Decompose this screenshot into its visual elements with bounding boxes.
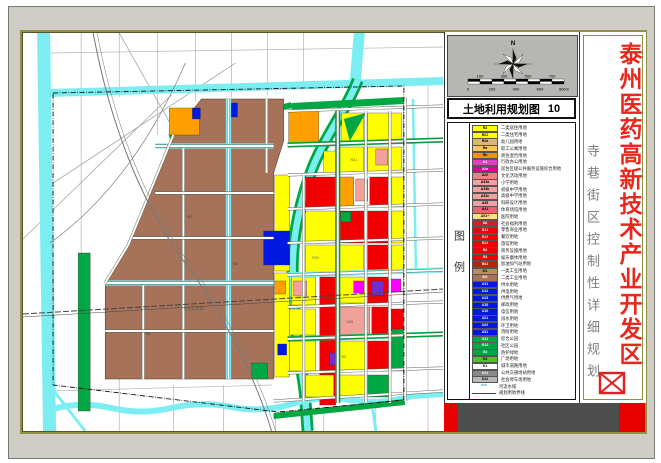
legend-item-label: 商务设施用地 [501, 248, 527, 254]
drawing-matte: M2M2M1R21R21A35R2北沿江高铁 N 100300500700020… [8, 6, 655, 459]
scale-segment [480, 79, 492, 82]
compass-scale-box: N 1003005007000200400600800m [447, 35, 578, 97]
scale-segment [468, 82, 480, 85]
signature-bar-red-right [619, 403, 645, 432]
planning-map: M2M2M1R21R21A35R2北沿江高铁 [23, 33, 443, 431]
legend-item-label: 社会福利用地 [501, 221, 527, 227]
legend-item-label: 娱乐康体用地 [501, 255, 527, 261]
parcel [370, 177, 388, 207]
parcel [192, 108, 200, 119]
legend-item-label: 广场用地 [501, 356, 518, 362]
legend-item-label: 供燃气用地 [501, 295, 522, 301]
parcel [340, 245, 364, 273]
legend-item-label: 二类工业用地 [501, 275, 527, 281]
legend-item-label: 二类住宅用地 [501, 132, 527, 138]
parcel-label: M2 [187, 215, 192, 219]
title-strip: 泰州医药高新技术产业开发区 寺巷街区控制性详细规划 [579, 32, 646, 403]
legend-item-label: 餐饮用地 [501, 234, 518, 240]
scale-label: 500 [525, 74, 532, 79]
scale-segment [528, 79, 540, 82]
parcel [390, 309, 404, 331]
scale-segment [540, 79, 552, 82]
compass-scale-svg: N 1003005007000200400600800m [448, 36, 577, 96]
signature-bar-red-left [444, 403, 458, 432]
planning-map-svg: M2M2M1R21R21A35R2北沿江高铁 [23, 33, 443, 431]
title-strip-frame: 泰州医药高新技术产业开发区 寺巷街区控制性详细规划 [583, 35, 643, 400]
scale-segment [504, 79, 516, 82]
legend-item-label: 行政办公用地 [501, 159, 527, 165]
legend-label-column: 图例 [448, 123, 470, 399]
railway-label: 北沿江高铁 [183, 305, 203, 311]
parcel [306, 177, 336, 207]
parcel [264, 231, 290, 265]
parcel [368, 245, 388, 273]
parcel [306, 245, 336, 273]
legend-item-label: 二类居住用地 [501, 125, 527, 131]
legend-panel: N 1003005007000200400600800m 土地利用规划图 10 … [444, 32, 580, 403]
legend-item-label: 居住区级公共服务设施综合用地 [501, 166, 561, 172]
scale-segment [492, 79, 504, 82]
scale-segment [516, 79, 528, 82]
parcel-label: M2 [233, 262, 238, 266]
legend-item-label: 体育场馆用地 [501, 207, 527, 213]
hospital-cross-icon: + [487, 214, 489, 218]
legend-label: 图例 [451, 230, 467, 292]
legend-item-label: 电信用地 [501, 309, 518, 315]
scale-segment [492, 82, 504, 85]
scale-label: 300 [501, 74, 508, 79]
legend-item-label: 小学用地 [501, 180, 518, 186]
green-left-bank [78, 253, 90, 411]
parcel-label: R2 [341, 355, 346, 359]
page: { "title_strip": { "main_title": "泰州医药高新… [0, 0, 661, 463]
parcel [354, 281, 364, 293]
legend-item-label: 防护绿地 [501, 350, 518, 356]
scale-label: 800m [559, 87, 570, 92]
scale-label: 200 [489, 87, 496, 92]
legend-item-label: 排水用地 [501, 316, 518, 322]
legend-item-label: 科研设计用地 [501, 200, 527, 206]
park [252, 363, 268, 379]
scale-segment [504, 82, 516, 85]
legend-item-label: 医院用地 [501, 214, 518, 220]
legend-item-label: 加油加气站用地 [501, 261, 531, 267]
parcel [278, 344, 287, 355]
scale-label: 0 [467, 87, 470, 92]
north-label: N [511, 41, 515, 47]
parcel [368, 113, 402, 143]
legend-item-label: 规划用地界线 [499, 390, 525, 396]
legend-item-label: 社会停车场用地 [501, 377, 531, 383]
scale-segment [516, 82, 528, 85]
boundary-line-icon [472, 393, 496, 394]
map-title-bar: 土地利用规划图 10 [447, 98, 576, 119]
parcel [338, 375, 366, 397]
legend-item-label: 社区公园 [501, 343, 518, 349]
legend-item-label: 高级中学用地 [501, 193, 527, 199]
parcel [372, 307, 388, 335]
legend-item-label: 城市道路用地 [501, 363, 527, 369]
legend-item-label: 综合公园 [501, 336, 518, 342]
park [341, 212, 351, 222]
project-title: 泰州医药高新技术产业开发区 [617, 42, 640, 367]
parcel [368, 341, 390, 371]
legend-item-label: 零售商业用地 [501, 227, 527, 233]
legend-item: S42社会停车场用地 [472, 376, 574, 383]
parcel [306, 375, 334, 397]
scale-segment [480, 82, 492, 85]
parcel-label: A35 [347, 320, 353, 324]
legend-item-label: 一类工业用地 [501, 268, 527, 274]
plan-sheet: M2M2M1R21R21A35R2北沿江高铁 N 100300500700020… [20, 30, 647, 434]
parcel-label: R21 [312, 256, 319, 260]
parcel [306, 211, 336, 243]
water-wave-icon: ≈≈ [472, 384, 496, 389]
scale-label: 700 [549, 74, 556, 79]
legend-item-label: 环卫用地 [501, 323, 518, 329]
legend-item: 规划用地界线 [472, 390, 574, 397]
parcel [340, 177, 354, 207]
legend-item-label: 商住混合用地 [501, 153, 527, 159]
scale-segment [468, 79, 480, 82]
parcel [368, 211, 388, 243]
legend-item-label: 初级中学用地 [501, 187, 527, 193]
scale-label: 600 [537, 87, 544, 92]
legend-item-label: 消防用地 [501, 329, 518, 335]
scale-label: 400 [513, 87, 520, 92]
parcel [376, 149, 388, 165]
legend-item-label: 河流水域 [499, 384, 516, 390]
parcel [392, 177, 404, 207]
legend-item-label: 公共交通场站用地 [501, 370, 535, 376]
scale-label: 100 [477, 74, 484, 79]
parcel [275, 281, 286, 294]
plan-subtitle: 寺巷街区控制性详细规划 [586, 144, 599, 386]
parcel [324, 151, 336, 173]
legend-item-label: 文化活动用地 [501, 173, 527, 179]
signature-bar [444, 403, 645, 432]
parcel-label: M1 [146, 332, 151, 336]
legend-box: 图例 R2二类居住用地R21二类住宅用地R2a幼儿园用地Ra职工公寓用地Rb商住… [447, 122, 576, 400]
scale-segment [552, 82, 564, 85]
map-title: 土地利用规划图 [463, 101, 540, 117]
legend-item-label: 供电用地 [501, 289, 518, 295]
legend-item-label: 幼儿园用地 [501, 139, 522, 145]
map-number: 10 [548, 103, 560, 115]
scale-segment [540, 82, 552, 85]
scale-segment [552, 79, 564, 82]
legend-item-label: 职工公寓用地 [501, 146, 527, 152]
legend-item-label: 供水用地 [501, 282, 518, 288]
stamp-icon [598, 371, 626, 395]
parcel [289, 111, 319, 143]
legend-item-label: 旅馆用地 [501, 241, 518, 247]
parcel-label: R21 [350, 158, 357, 162]
legend-item-label: 邮政用地 [501, 302, 518, 308]
legend-item: ≈≈河流水域 [472, 383, 574, 390]
legend-rows: R2二类居住用地R21二类住宅用地R2a幼儿园用地Ra职工公寓用地Rb商住混合用… [472, 125, 574, 398]
scale-segment [528, 82, 540, 85]
